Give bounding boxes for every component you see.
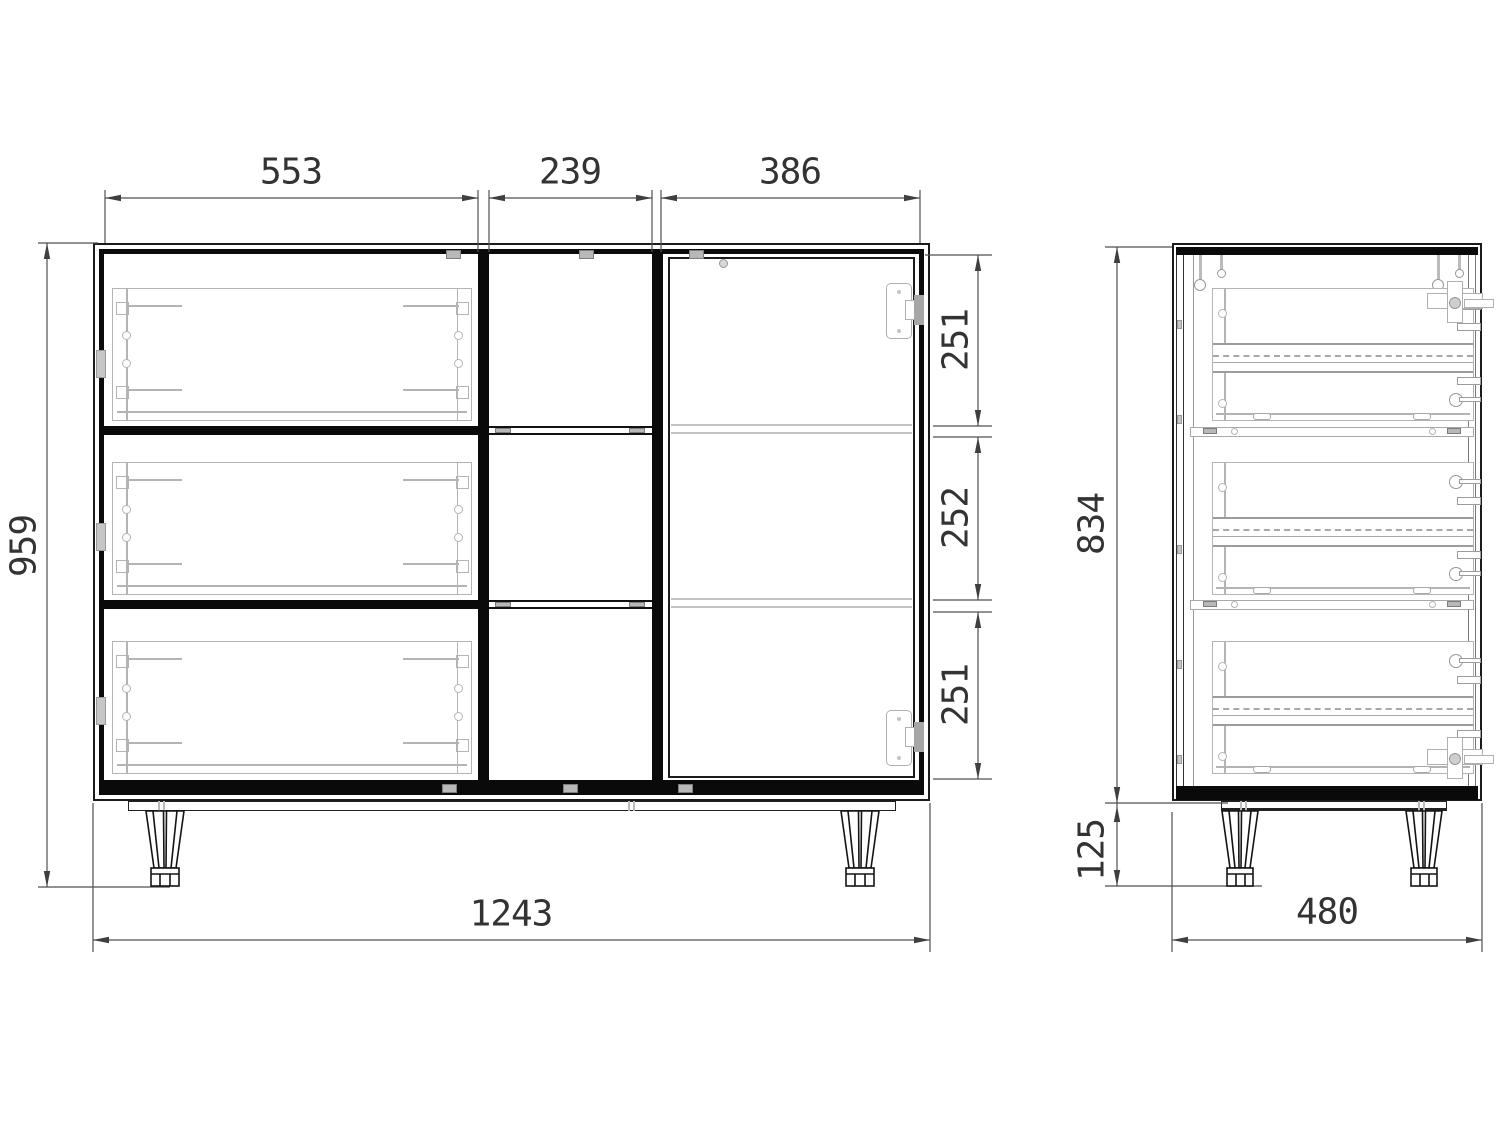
side-hinge-bottom-pivot [1449, 753, 1461, 765]
plinth-bolt [1418, 801, 1420, 811]
plinth-bolt [628, 801, 630, 811]
drawer-bolt [116, 739, 129, 752]
side-hinge-bottom-tab [1464, 755, 1494, 764]
front-middle-shelf-1 [489, 426, 652, 435]
front-drawer-box-2 [112, 462, 472, 595]
shelf-cam-lock [629, 602, 645, 607]
dim-front-width-right: 386 [759, 152, 821, 193]
divider-cam [1203, 428, 1217, 434]
plinth-bolt [158, 801, 160, 811]
dim-front-width-left: 553 [260, 152, 322, 193]
door-edge-mark [1177, 755, 1182, 764]
divider-cam [1447, 601, 1461, 607]
top-bolt-head [1217, 269, 1226, 278]
drawer-slide-rail [1213, 343, 1473, 373]
drawer-hole [1218, 573, 1227, 582]
hinge-screw-dot [897, 756, 901, 760]
drawer-hole [122, 712, 131, 721]
drawer-glide [1253, 766, 1271, 773]
drawer-bolt [456, 739, 469, 752]
drawer-glide [1413, 766, 1431, 773]
slide-rail-mid [1213, 529, 1473, 537]
drawer-hole [122, 505, 131, 514]
front-left-leg [146, 811, 184, 886]
door-shelf-line [671, 606, 912, 608]
dim-side-depth: 480 [1296, 892, 1358, 933]
door-edge-mark [1177, 320, 1182, 329]
hinge-screw-dot [897, 290, 901, 294]
cam-lock [579, 250, 594, 259]
drawer-bolt [456, 476, 469, 489]
slide-hardware [96, 523, 106, 551]
side-front-edge-line [1193, 255, 1194, 786]
drawer-bolt [116, 386, 129, 399]
screw-head [719, 259, 728, 268]
top-bolt-head [1455, 269, 1464, 278]
drawer-bolt [116, 476, 129, 489]
dim-compartment-bottom: 251 [936, 664, 977, 726]
drawer-glide [1253, 587, 1271, 594]
drawer-hole [454, 505, 463, 514]
drawer-hole [454, 712, 463, 721]
top-bolt-head [1194, 279, 1206, 291]
dim-side-carcass-height: 834 [1072, 493, 1113, 555]
drawer-bolt [456, 302, 469, 315]
door-edge-mark [1177, 415, 1182, 424]
side-divider-1 [1190, 427, 1474, 437]
drawer-hole [1218, 662, 1227, 671]
side-divider-2 [1190, 600, 1474, 610]
door-shelf-line [671, 424, 912, 426]
side-hinge-top-tab [1464, 299, 1494, 308]
slide-hardware [96, 350, 106, 378]
side-bolt-stem [1459, 571, 1481, 576]
cam-lock [563, 784, 578, 793]
drawer-hole [122, 684, 131, 693]
dim-side-leg-height: 125 [1072, 819, 1113, 881]
drawer-glide [1253, 413, 1271, 420]
side-door-edge [1176, 255, 1184, 786]
side-left-leg [1222, 811, 1258, 886]
drawer-bolt [116, 560, 129, 573]
drawer-hole [122, 359, 131, 368]
drawer-bolt [456, 655, 469, 668]
drawer-hole [454, 533, 463, 542]
side-dowel [1457, 323, 1481, 331]
dim-front-width-middle: 239 [539, 152, 601, 193]
drawer-bolt [456, 386, 469, 399]
hinge-screw-dot [897, 717, 901, 721]
drawer-hole [1218, 399, 1227, 408]
slide-rail-mid [1213, 708, 1473, 716]
door-hinge-bottom-knuckle [914, 722, 924, 752]
drawer-hole [122, 331, 131, 340]
side-drawer-2 [1212, 462, 1474, 595]
dim-front-overall-width: 1243 [470, 894, 553, 935]
divider-hole [1429, 601, 1436, 608]
drawer-hole [1218, 483, 1227, 492]
cam-lock [442, 784, 457, 793]
door-edge-mark [1177, 545, 1182, 554]
shelf-cam-lock [629, 428, 645, 433]
side-bolt-stem [1459, 397, 1481, 402]
cam-lock [678, 784, 693, 793]
shelf-cam-lock [495, 428, 511, 433]
drawer-hole [1218, 752, 1227, 761]
side-plinth [1221, 801, 1447, 811]
cam-lock [689, 250, 704, 259]
door-shelf-line [671, 598, 912, 600]
drawer-hole [1218, 309, 1227, 318]
drawer-bolt [116, 655, 129, 668]
cabinet-technical-drawing: 553 239 386 959 251 252 251 1243 834 125… [0, 0, 1500, 1125]
front-drawer-box-3 [112, 641, 472, 774]
drawer-hole [122, 533, 131, 542]
side-dowel [1457, 497, 1481, 505]
front-plinth [128, 801, 896, 811]
door-edge-mark [1177, 660, 1182, 669]
plinth-bolt [1423, 801, 1425, 811]
front-drawer-separator-1 [104, 426, 478, 435]
plinth-bolt [163, 801, 165, 811]
drawer-bolt [116, 302, 129, 315]
drawer-hole [454, 684, 463, 693]
side-back-line [1475, 255, 1476, 786]
plinth-bolt [1245, 801, 1247, 811]
plinth-bolt [1240, 801, 1242, 811]
drawer-glide [1413, 587, 1431, 594]
front-right-leg [841, 811, 879, 886]
dim-compartment-top: 251 [936, 309, 977, 371]
divider-hole [1231, 428, 1238, 435]
drawer-glide [1413, 413, 1431, 420]
side-hinge-top-pivot [1449, 297, 1461, 309]
drawer-slide-rail [1213, 517, 1473, 547]
side-right-leg [1406, 811, 1442, 886]
side-dowel [1457, 377, 1481, 385]
side-dowel [1457, 551, 1481, 559]
top-bolt-stem [1199, 255, 1202, 281]
front-drawer-box-1 [112, 288, 472, 421]
front-divider-left [478, 254, 489, 780]
dim-compartment-middle: 252 [936, 487, 977, 549]
drawer-bottom-rail [117, 764, 467, 766]
divider-cam [1203, 601, 1217, 607]
slide-rail-mid [1213, 355, 1473, 363]
front-door-panel [668, 257, 915, 778]
cam-lock [446, 250, 461, 259]
divider-hole [1429, 428, 1436, 435]
front-middle-shelf-2 [489, 600, 652, 609]
front-drawer-separator-2 [104, 600, 478, 609]
side-bottom-panel [1176, 786, 1478, 800]
front-divider-right [652, 254, 663, 780]
side-bolt-stem [1459, 658, 1481, 663]
side-bolt-stem [1459, 479, 1481, 484]
drawer-slide-rail [1213, 696, 1473, 726]
door-shelf-line [671, 432, 912, 434]
divider-cam [1447, 428, 1461, 434]
drawer-hole [454, 359, 463, 368]
top-bolt-stem [1437, 255, 1440, 281]
plinth-bolt [633, 801, 635, 811]
divider-hole [1231, 601, 1238, 608]
drawer-hole [454, 331, 463, 340]
shelf-cam-lock [495, 602, 511, 607]
cabinet-legs [146, 811, 1442, 886]
side-top-panel [1176, 247, 1478, 255]
hinge-screw-dot [897, 329, 901, 333]
dim-front-overall-height: 959 [4, 515, 45, 577]
drawer-bolt [456, 560, 469, 573]
drawer-bottom-rail [117, 411, 467, 413]
slide-hardware [96, 697, 106, 725]
side-dowel [1457, 676, 1481, 684]
drawer-bottom-rail [117, 585, 467, 587]
door-hinge-top-knuckle [914, 295, 924, 325]
